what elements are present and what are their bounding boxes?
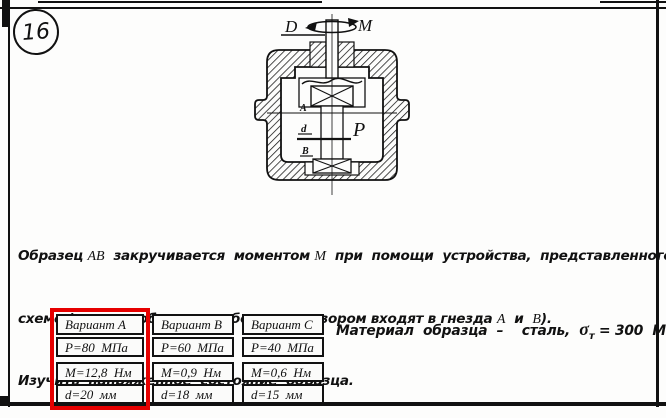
variant-c-header: Вариант С	[242, 314, 324, 335]
frame-top-extra-line	[38, 1, 322, 3]
label-d: d	[301, 123, 307, 135]
variant-a-diameter: d=20 мм	[56, 384, 144, 404]
variant-a-column: Вариант А P=80 МПа M=12,8 Нм d=20 мм	[56, 314, 144, 404]
variant-c-moment: M=0,6 Нм	[242, 362, 324, 382]
variants-table: Вариант А P=80 МПа M=12,8 Нм d=20 мм Вар…	[56, 314, 324, 404]
moment-arrowhead-left	[305, 22, 317, 31]
text: при помощи устройства, представленного н…	[326, 248, 666, 264]
var-AB: AB	[87, 249, 104, 264]
frame-top-border	[0, 7, 666, 9]
variant-b-column: Вариант В P=60 МПа M=0,9 Нм d=18 мм	[152, 314, 234, 404]
scan-artifact-top-left	[2, 0, 9, 27]
gland-right	[338, 42, 354, 67]
material-value: = 300 МПа	[594, 323, 666, 339]
variant-b-header: Вариант В	[152, 314, 234, 335]
variant-c-pressure: P=40 МПа	[242, 337, 324, 357]
label-B: B	[301, 146, 309, 157]
text: Образец	[18, 248, 87, 264]
gland-left	[310, 42, 326, 67]
card-number-badge: 16	[11, 7, 60, 56]
problem-card: 16	[0, 0, 666, 418]
label-M: M	[357, 16, 373, 35]
problem-line-1: Образец AB закручивается моментом M при …	[18, 246, 666, 268]
variant-a-header: Вариант А	[56, 314, 144, 335]
variant-b-diameter: d=18 мм	[152, 384, 234, 404]
material-note: Материал образца – сталь, σт = 300 МПа	[336, 319, 666, 342]
device-cross-section-figure: D M A d P B	[245, 12, 445, 198]
variant-b-moment: M=0,9 Нм	[152, 362, 234, 382]
scan-artifact-bottom-left	[0, 396, 10, 406]
frame-left-border	[8, 0, 10, 407]
variant-a-pressure: P=80 МПа	[56, 337, 144, 357]
variant-c-column: Вариант С P=40 МПа M=0,6 Нм d=15 мм	[242, 314, 324, 404]
card-number: 16	[21, 19, 51, 46]
label-A: A	[299, 103, 307, 114]
material-text: Материал образца – сталь,	[336, 323, 579, 339]
label-D: D	[284, 17, 298, 36]
variant-c-diameter: d=15 мм	[242, 384, 324, 404]
var-M: M	[314, 249, 326, 264]
text: закручивается моментом	[105, 248, 315, 264]
label-P: P	[352, 119, 365, 141]
variant-b-pressure: P=60 МПа	[152, 337, 234, 357]
sigma-symbol: σ	[579, 319, 589, 339]
variant-a-moment: M=12,8 Нм	[56, 362, 144, 382]
